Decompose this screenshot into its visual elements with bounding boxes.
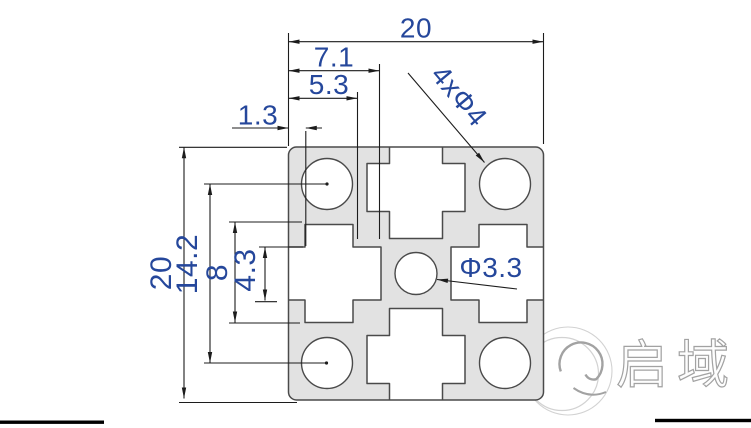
watermark-logo: 启域: [524, 327, 738, 415]
dim-lip-thickness: 1.3: [232, 100, 322, 131]
dim-label-cavity-offset: 5.3: [309, 69, 349, 100]
dim-label-overall-width: 20: [400, 13, 432, 44]
dim-label-slot-opening-width: 4.3: [229, 248, 262, 291]
dim-overall-width: 20: [289, 13, 544, 44]
watermark-q-tail-icon: [574, 388, 607, 395]
dim-label-center-hole: Φ3.3: [459, 252, 522, 283]
technical-drawing-page: 启域 20 7.1: [0, 0, 751, 428]
frame-border-right: [655, 419, 751, 422]
frame-border-left: [0, 421, 104, 424]
dim-slot-opening-width: 4.3: [229, 247, 267, 301]
profile-drawing-canvas: 启域 20 7.1: [0, 0, 751, 428]
dim-label-corner-holes: 4xΦ4: [425, 59, 493, 132]
corner-hole-top-right: [480, 159, 531, 210]
dim-label-slot-offset: 7.1: [314, 42, 354, 73]
dim-label-lip-thickness: 1.3: [238, 100, 278, 131]
dim-cavity-offset: 5.3: [289, 69, 358, 101]
dim-label-hole-spacing: 14.2: [171, 234, 204, 294]
watermark-brand-text: 启域: [616, 337, 738, 395]
corner-hole-bottom-right: [480, 338, 531, 389]
center-hole: [395, 253, 437, 295]
